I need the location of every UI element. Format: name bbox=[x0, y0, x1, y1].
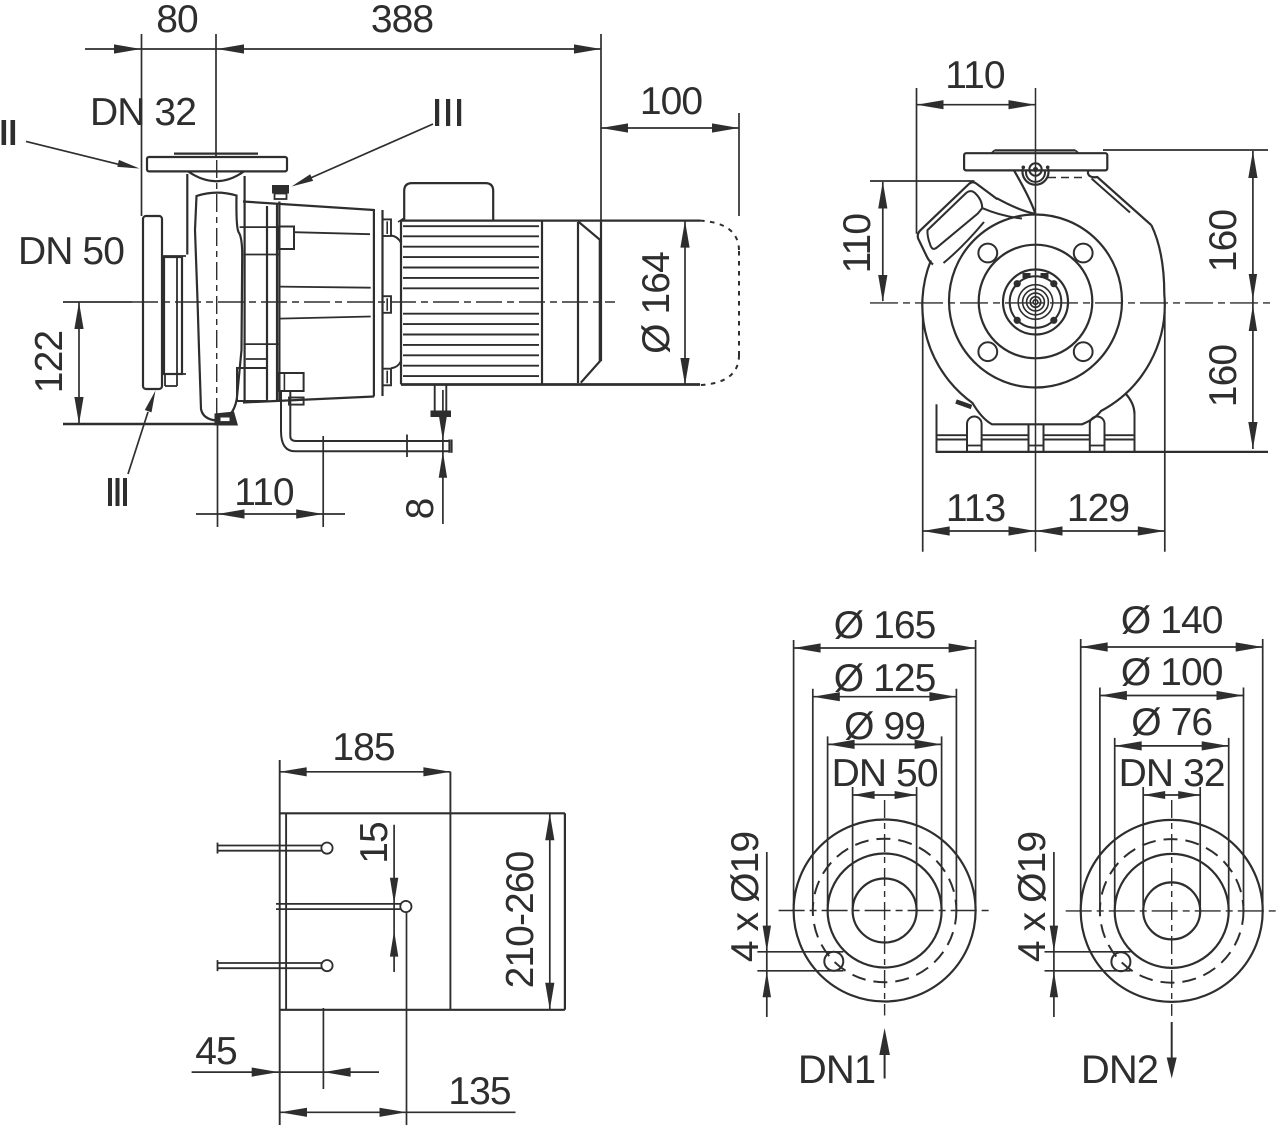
svg-text:DN2: DN2 bbox=[1081, 1048, 1158, 1092]
svg-text:129: 129 bbox=[1067, 487, 1129, 530]
svg-text:160: 160 bbox=[1202, 210, 1245, 273]
svg-text:Ø 125: Ø 125 bbox=[834, 657, 936, 700]
svg-text:210-260: 210-260 bbox=[499, 851, 542, 988]
svg-text:DN 32: DN 32 bbox=[90, 91, 196, 134]
svg-text:122: 122 bbox=[28, 331, 71, 393]
svg-text:388: 388 bbox=[371, 0, 433, 41]
svg-text:110: 110 bbox=[836, 214, 879, 274]
svg-text:Ø 140: Ø 140 bbox=[1121, 599, 1223, 642]
svg-text:45: 45 bbox=[195, 1030, 237, 1073]
svg-text:80: 80 bbox=[156, 0, 198, 41]
svg-text:DN1: DN1 bbox=[798, 1048, 875, 1092]
svg-text:Ø 165: Ø 165 bbox=[834, 604, 936, 647]
svg-text:185: 185 bbox=[332, 726, 395, 769]
svg-text:100: 100 bbox=[640, 80, 703, 123]
svg-text:DN 50: DN 50 bbox=[832, 752, 938, 795]
svg-text:110: 110 bbox=[234, 471, 294, 514]
svg-text:DN 50: DN 50 bbox=[18, 230, 124, 273]
svg-text:4 x Ø19: 4 x Ø19 bbox=[1011, 832, 1054, 962]
svg-text:4 x Ø19: 4 x Ø19 bbox=[724, 832, 767, 962]
svg-text:DN 32: DN 32 bbox=[1119, 752, 1225, 795]
svg-text:Ø 99: Ø 99 bbox=[844, 705, 925, 748]
svg-text:135: 135 bbox=[448, 1070, 511, 1113]
svg-text:Ø 164: Ø 164 bbox=[635, 252, 678, 354]
svg-text:Ø 76: Ø 76 bbox=[1131, 701, 1212, 744]
svg-text:8: 8 bbox=[399, 499, 442, 520]
svg-text:160: 160 bbox=[1202, 345, 1245, 408]
svg-text:113: 113 bbox=[946, 487, 1005, 530]
svg-text:15: 15 bbox=[353, 822, 396, 864]
svg-text:Ø 100: Ø 100 bbox=[1121, 651, 1223, 694]
svg-text:110: 110 bbox=[945, 54, 1005, 97]
